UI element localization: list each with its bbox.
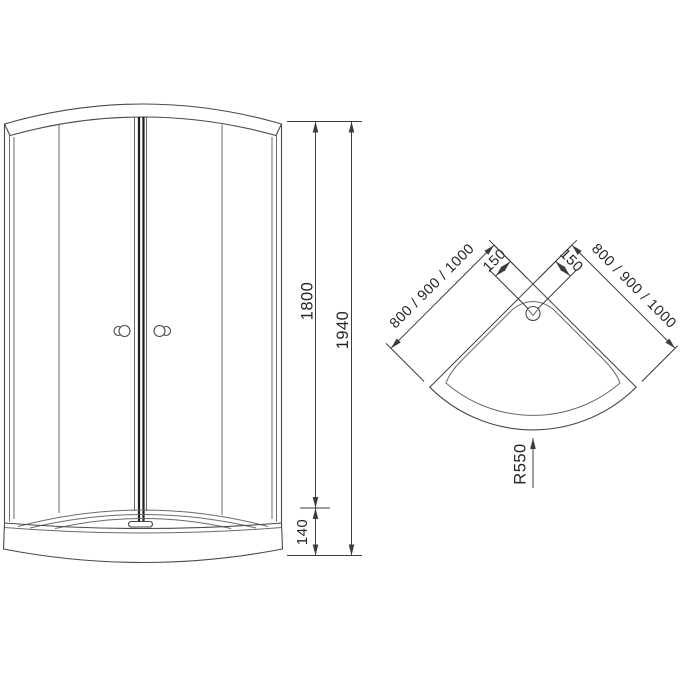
tray-apron-bottom-edge xyxy=(4,549,283,563)
extension-line-right-bottom xyxy=(642,346,678,382)
extension-line-drain-right xyxy=(538,270,578,310)
dim-tray-height: 140 xyxy=(294,519,311,546)
dim-total-height: 1940 xyxy=(334,311,352,350)
drain-notch-icon xyxy=(529,310,538,316)
dim-drain-offset-right: 150 xyxy=(556,246,585,275)
left-door-handle-icon xyxy=(114,326,130,337)
tray-waste-cover xyxy=(129,522,153,528)
tray-apron-left-side xyxy=(4,523,5,549)
dim-drain-offset-left: 150 xyxy=(480,246,509,275)
dim-width-right: 800 / 900 / 1000 xyxy=(588,241,679,332)
front-dimensions: 1800 140 1940 xyxy=(287,122,362,556)
dim-line-width-right xyxy=(572,245,675,348)
dim-total-height-label: 1940 xyxy=(334,311,352,350)
dim-front-radius: R550 xyxy=(511,443,529,484)
dim-glass-height: 1800 xyxy=(298,282,316,321)
dim-drain-offset-left-label: 150 xyxy=(480,246,509,275)
plan-inner-contour xyxy=(446,302,620,416)
tray-apron-right-side xyxy=(282,523,283,549)
technical-drawing-shower-enclosure: 1800 140 1940 150 xyxy=(0,0,680,680)
right-door-handle-icon xyxy=(154,326,171,337)
shower-front-elevation xyxy=(4,104,283,563)
dim-width-left-label: 800 / 900 / 1000 xyxy=(387,241,478,332)
dim-width-left: 800 / 900 / 1000 xyxy=(387,241,478,332)
extension-line-left-bottom xyxy=(386,343,424,381)
dim-glass-height-label: 1800 xyxy=(298,282,316,321)
dim-front-radius-label: R550 xyxy=(511,443,529,484)
plan-dimensions: 150 150 800 / 900 / 1000 800 / 900 / 100… xyxy=(386,240,679,488)
drawing-svg: 1800 140 1940 150 xyxy=(0,0,680,680)
dim-drain-offset-right-label: 150 xyxy=(556,246,585,275)
shower-plan-view xyxy=(430,245,636,430)
dim-tray-height-label: 140 xyxy=(294,519,311,546)
dim-width-right-label: 800 / 900 / 1000 xyxy=(588,241,679,332)
dim-line-width-left xyxy=(391,245,494,348)
extension-line-drain-left xyxy=(489,270,529,310)
